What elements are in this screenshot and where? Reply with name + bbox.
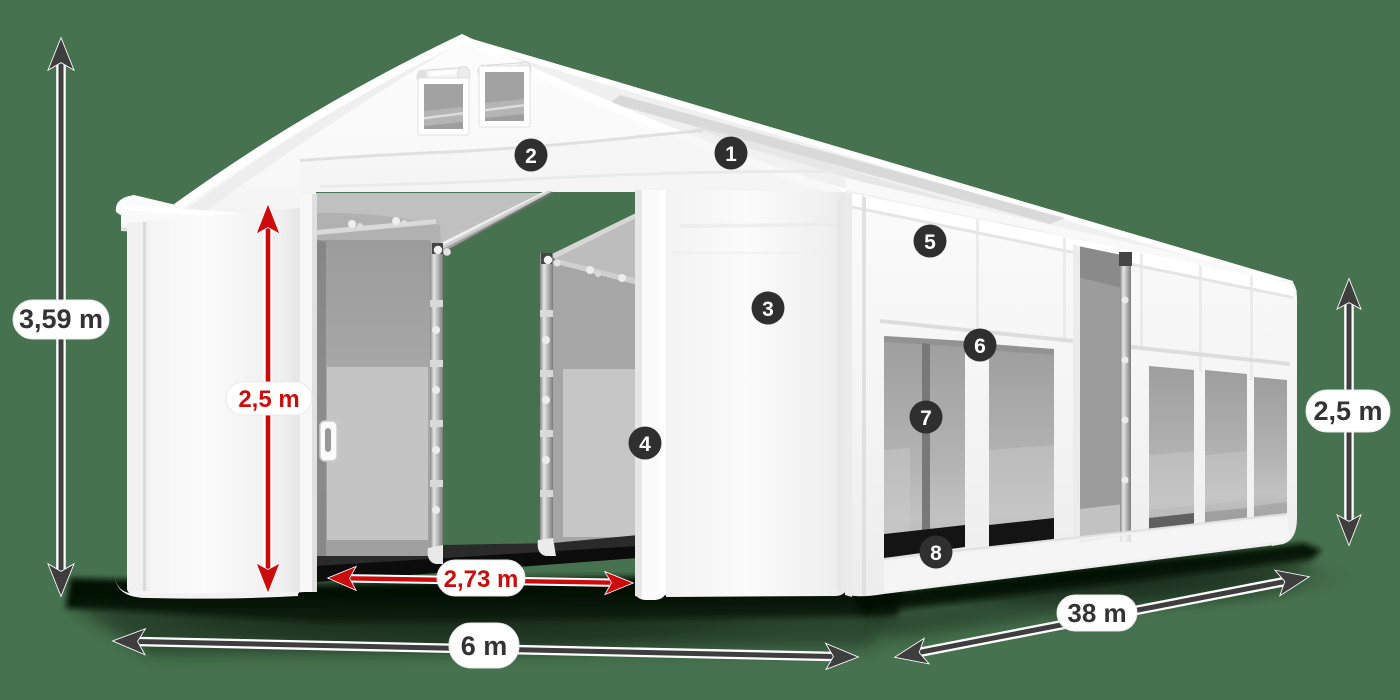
- svg-text:7: 7: [920, 407, 932, 430]
- svg-text:6 m: 6 m: [461, 631, 508, 661]
- svg-text:3: 3: [762, 298, 774, 321]
- svg-text:2,5 m: 2,5 m: [238, 386, 299, 413]
- svg-text:2,73 m: 2,73 m: [444, 566, 519, 593]
- svg-text:4: 4: [639, 433, 651, 456]
- svg-text:5: 5: [924, 231, 936, 254]
- svg-text:6: 6: [974, 335, 986, 358]
- svg-text:8: 8: [930, 542, 942, 565]
- svg-text:1: 1: [725, 143, 737, 166]
- svg-text:2,5 m: 2,5 m: [1313, 396, 1382, 426]
- svg-text:3,59 m: 3,59 m: [19, 304, 103, 334]
- svg-text:2: 2: [525, 145, 537, 168]
- svg-text:38 m: 38 m: [1067, 598, 1126, 628]
